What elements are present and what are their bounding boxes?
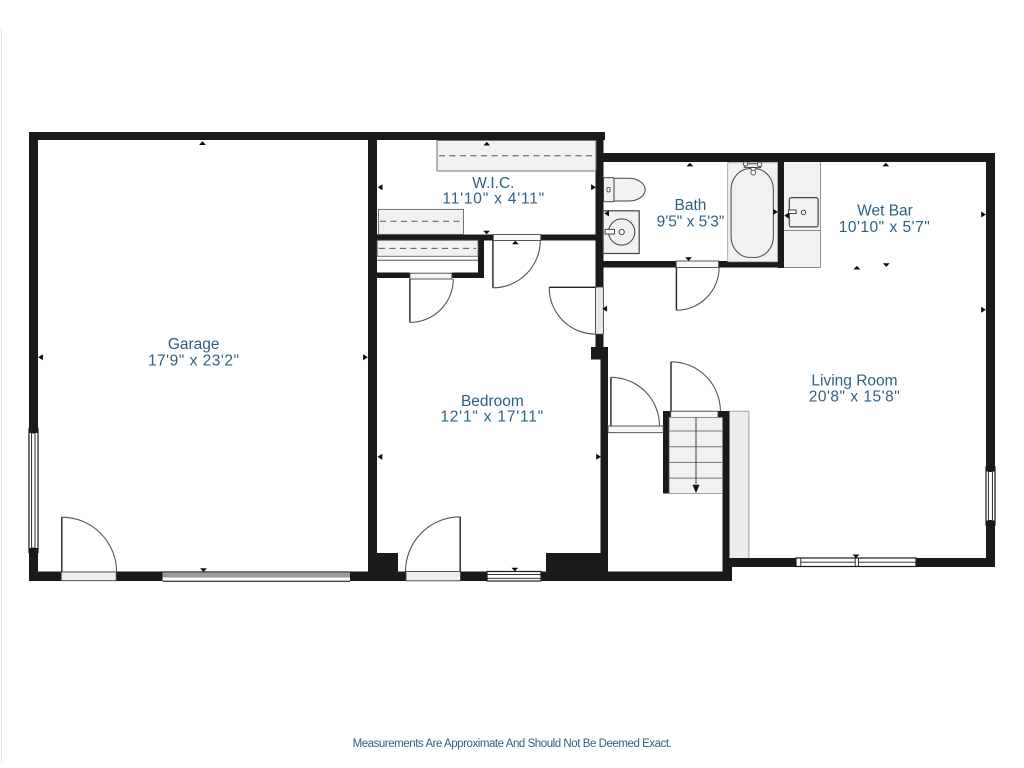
svg-text:Garage: Garage [168, 336, 220, 353]
svg-text:20'8" x 15'8": 20'8" x 15'8" [809, 389, 901, 406]
svg-text:Living Room: Living Room [811, 373, 897, 390]
svg-text:10'10" x 5'7": 10'10" x 5'7" [839, 219, 931, 236]
svg-text:12'1" x 17'11": 12'1" x 17'11" [440, 409, 544, 426]
svg-text:Bath: Bath [675, 197, 707, 214]
svg-text:W.I.C.: W.I.C. [472, 175, 514, 192]
svg-text:Measurements Are Approximate A: Measurements Are Approximate And Should … [353, 738, 672, 750]
svg-text:17'9" x 23'2": 17'9" x 23'2" [148, 352, 240, 369]
svg-text:Wet Bar: Wet Bar [857, 203, 913, 220]
svg-text:11'10" x 4'11": 11'10" x 4'11" [442, 191, 545, 208]
svg-text:9'5" x 5'3": 9'5" x 5'3" [657, 214, 725, 231]
